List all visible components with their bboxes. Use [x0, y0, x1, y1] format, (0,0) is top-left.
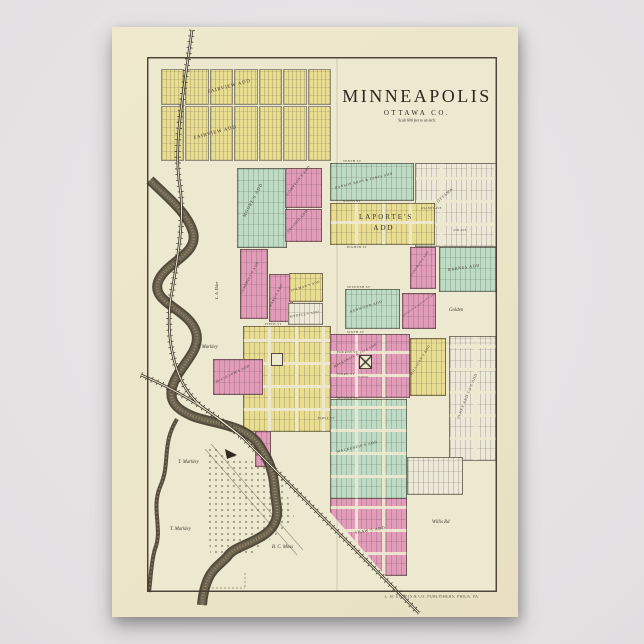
- addition-label: MOORE'S ADD: [242, 182, 264, 218]
- addition-fairview-grid: FAIRVIEW ADD FAIRVIEW ADD: [160, 68, 332, 162]
- landowner-label: T. Markley: [197, 345, 218, 350]
- map-county: OTTAWA CO.: [342, 109, 492, 117]
- landowner-label: T. Markley: [178, 460, 199, 465]
- addition-comptons: COMPTON'S ADD: [285, 168, 322, 208]
- addition-houston: HOUSTON & JOHNSON'S ADD: [402, 293, 436, 329]
- school-label: SCHOOL: [358, 376, 369, 378]
- addition-label: BARNES ADD: [448, 264, 480, 272]
- map-area: FAIRVIEW ADD FAIRVIEW ADD MOORE'S ADD CO…: [147, 57, 497, 592]
- addition-shaws: SHAW'S ADD: [330, 498, 407, 576]
- addition-kenwood: KENWOOD ADD: [345, 289, 400, 329]
- addition-label: WARD'S ADD: [269, 283, 284, 308]
- addition-moores: MOORE'S ADD: [237, 168, 287, 248]
- landowner-label: B. C. Moss: [272, 545, 293, 550]
- addition-label: HANSON BROS & JONES ADD: [335, 172, 394, 190]
- landowner-label: T. Markley: [170, 527, 191, 532]
- courthouse-square: [271, 353, 283, 366]
- addition-hanson: HANSON BROS & JONES ADD: [330, 163, 414, 201]
- addition-mackenzie-co: MACKENZIE & CO'S ADD SCHOOL: [330, 334, 410, 398]
- addition-label: SECOND ADD: [287, 209, 309, 233]
- street-label: SECOND ST: [337, 397, 358, 400]
- map-scale-note: Scale 600 feet to an inch.: [371, 119, 464, 123]
- street-label: SEVENTH ST: [347, 286, 370, 289]
- addition-label: McCOLLOM'S ADD: [215, 364, 250, 383]
- addition-label: LAPORTE'S ADD: [359, 212, 409, 233]
- road-label: Willis Rd: [432, 520, 449, 525]
- town-block: [284, 107, 305, 160]
- street-label: NINTH ST: [343, 200, 361, 203]
- addition-campbells: CAMPBELL'S ADD: [240, 249, 268, 319]
- street-label: FIFTH ST: [265, 323, 282, 326]
- town-block: [162, 107, 183, 160]
- addition-laportes: LAPORTE'S ADD: [330, 203, 435, 245]
- town-block: [186, 70, 207, 104]
- creek-texture: [149, 419, 177, 592]
- addition-label: COLMAN'S ADD: [291, 280, 321, 292]
- addition-label: HOUSTON & JOHNSON'S ADD: [402, 292, 436, 317]
- town-block: [235, 70, 256, 104]
- street-label: EIGHTH ST: [347, 246, 367, 249]
- street-label: FIRST ST: [318, 417, 335, 420]
- town-block: [309, 70, 330, 104]
- town-block: [260, 107, 281, 160]
- addition-milligans: MILLIGAN'S ADD: [410, 338, 446, 396]
- addition-label: STINEMAN'S ADD: [410, 251, 430, 277]
- addition-mackenzies: MACKENZIE'S ADD: [330, 399, 407, 499]
- white-lots-south: [407, 457, 463, 495]
- addition-stinemans: STINEMAN'S ADD: [410, 247, 436, 289]
- addition-barnes: BARNES ADD: [439, 247, 497, 292]
- small-pink-strip: [255, 431, 271, 467]
- creek: [149, 419, 177, 592]
- addition-label: OLNEY AND CO'S ADD: [456, 373, 478, 420]
- map-poster: FAIRVIEW ADD FAIRVIEW ADD MOORE'S ADD CO…: [112, 27, 518, 617]
- addition-label: MILLIGAN'S ADD: [410, 344, 432, 376]
- addition-label: MACKENZIE'S ADD: [337, 440, 378, 454]
- map-title: MINNEAPOLIS: [342, 87, 492, 105]
- addition-label: KENWOOD ADD: [349, 300, 382, 314]
- dashed-line: [200, 573, 245, 588]
- addition-label: SHAW'S ADD: [355, 526, 386, 535]
- avenue-label: WALNUT AVE: [421, 207, 442, 210]
- addition-second: SECOND ADD: [285, 209, 322, 242]
- street-label: TENTH ST: [343, 160, 361, 163]
- title-block: MINNEAPOLIS OTTAWA CO. Scale 600 feet to…: [342, 87, 492, 125]
- street-label: SIXTH ST: [347, 331, 364, 334]
- landowner-label: Golden: [449, 308, 463, 313]
- addition-myrtles: MYRTLE'S ADD: [288, 303, 323, 325]
- landowner-label: L. A. Elder: [215, 282, 219, 299]
- addition-mccolloms: McCOLLOM'S ADD: [213, 359, 263, 395]
- street-label: THIRD ST: [337, 373, 355, 376]
- publisher-imprint: L. H. EVERTS & CO. PUBLISHERS, PHILA. PA…: [376, 595, 488, 599]
- town-block: [235, 107, 256, 160]
- addition-label: MYRTLE'S ADD: [290, 310, 320, 318]
- addition-label: COMPTON'S ADD: [286, 165, 312, 196]
- orchard-stipple: [202, 442, 302, 560]
- school-square: [359, 355, 372, 369]
- town-block: [284, 70, 305, 104]
- street-label: FOURTH ST: [337, 351, 358, 354]
- addition-colmans: COLMAN'S ADD: [289, 273, 323, 302]
- town-block: [309, 107, 330, 160]
- town-block: [162, 70, 183, 104]
- avenue-label: ASH AVE: [453, 229, 467, 232]
- addition-label: CAMPBELL'S ADD: [240, 261, 260, 295]
- addition-olney: OLNEY AND CO'S ADD: [449, 336, 497, 461]
- town-block: [260, 70, 281, 104]
